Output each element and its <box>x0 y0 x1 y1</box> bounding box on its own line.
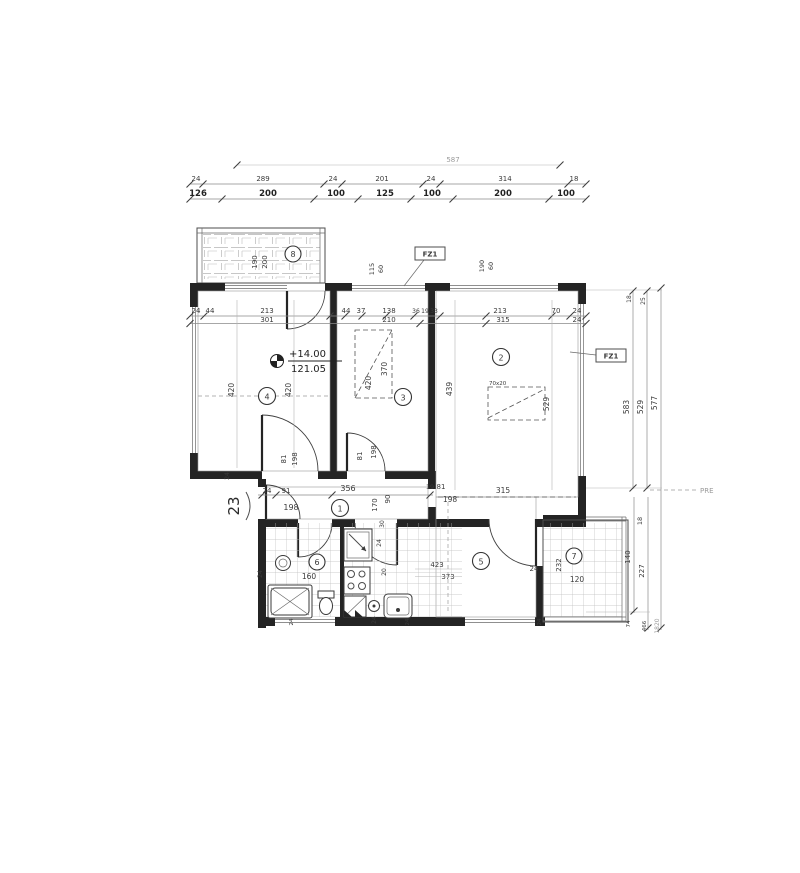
dim: 420 <box>227 383 236 398</box>
dim-total: 587 <box>446 156 459 164</box>
room-1-number: 1 <box>337 505 342 514</box>
dim: 18 <box>636 517 644 525</box>
dim: 583 <box>622 400 631 415</box>
dim: 200 <box>259 189 277 199</box>
dim: 90 <box>384 495 392 504</box>
dim: 213 <box>493 307 506 315</box>
dim: 36 <box>412 308 420 315</box>
dim: 120 <box>570 575 585 584</box>
fz1-label-top: FZ1 <box>404 247 445 286</box>
dim: 315 <box>496 316 509 324</box>
balcony-7: 7 232 120 <box>543 517 628 622</box>
dim: 115 <box>368 263 376 275</box>
kitchen: 423 373 20 24 <box>344 523 462 624</box>
room-5-number: 5 <box>478 558 483 567</box>
dim: 24 <box>224 472 231 480</box>
dim: 91 <box>282 487 291 495</box>
dim: 24 <box>371 616 378 624</box>
dim: 25 <box>640 297 647 305</box>
mid-dimension-rows: 24 44 213 44 37 138 36 19 33 213 70 24 3… <box>187 307 590 327</box>
section-mark: 23 24 <box>224 472 250 520</box>
dim: 60 <box>377 265 385 273</box>
dim: 301 <box>260 316 273 324</box>
dim: 315 <box>496 486 511 495</box>
dim: 44 <box>206 307 215 315</box>
pre-label: PRE <box>700 487 714 495</box>
dim: 44 <box>342 307 351 315</box>
dim: 289 <box>256 175 269 183</box>
dim: 210 <box>382 316 395 324</box>
dim: 356 <box>340 484 355 493</box>
dim: 314 <box>498 175 512 183</box>
bed-label: 70x20 <box>489 381 507 387</box>
elevation-bottom: 121.05 <box>291 364 326 375</box>
room-2-number: 2 <box>498 354 503 363</box>
room-4: 4 420 420 81 198 +14.00 121.05 <box>198 300 342 468</box>
dim: 20 <box>381 568 388 576</box>
elevation-top: +14.00 <box>289 349 326 360</box>
dim: 100 <box>423 189 441 199</box>
top-dimension-chains: 587 24 289 24 201 24 314 18 126 200 100 … <box>187 156 590 203</box>
dim: 125 <box>376 189 394 199</box>
dim: 200 <box>261 255 269 268</box>
section-number: 23 <box>225 496 243 515</box>
dim: 198 <box>443 495 458 504</box>
dim: 200 <box>494 189 512 199</box>
dim: 213 <box>260 307 273 315</box>
dim: 24 <box>289 618 295 625</box>
dim: 140 <box>624 550 632 563</box>
dim: 81 <box>356 452 364 461</box>
dim: 190 <box>251 255 259 268</box>
dim: 577 <box>650 396 659 411</box>
dim: 1820 <box>654 618 661 633</box>
dim: 439 <box>445 382 454 397</box>
dim: 24 <box>192 307 201 315</box>
dim: 100 <box>327 189 345 199</box>
dim: 198 <box>370 445 378 458</box>
room-3: 3 420 370 81 198 <box>355 330 412 460</box>
dim: 33 <box>430 308 438 315</box>
floor-plan-drawing: 587 24 289 24 201 24 314 18 126 200 100 … <box>0 0 800 873</box>
dim: 126 <box>189 189 207 199</box>
room-2: 2 439 529 70x20 315 <box>438 300 576 497</box>
dim: 198 <box>291 452 299 465</box>
dim: 18 <box>626 295 633 303</box>
dim: 160 <box>302 572 317 581</box>
dim: 60 <box>487 262 495 270</box>
dim: 227 <box>638 564 646 577</box>
dim: 24 <box>537 618 543 625</box>
dim: 74 <box>626 620 632 627</box>
dim: 70 <box>552 307 561 315</box>
dim: 190 <box>478 260 486 272</box>
floor-plan-page: 587 24 289 24 201 24 314 18 126 200 100 … <box>0 0 800 873</box>
room-7-number: 7 <box>571 552 576 561</box>
dim: 18 <box>570 175 579 183</box>
dim: 37 <box>357 307 366 315</box>
dim: 466 <box>642 620 648 631</box>
dim: 24 <box>329 175 338 183</box>
balcony-8: 8 190 200 <box>197 228 325 283</box>
dim: 529 <box>542 397 551 412</box>
dim: 24 <box>530 565 539 573</box>
dim: 138 <box>382 307 395 315</box>
dim: 100 <box>557 189 575 199</box>
dim: 198 <box>283 503 298 512</box>
fz1-label-right: FZ1 <box>570 349 626 362</box>
dim: 170 <box>371 498 379 511</box>
room-4-number: 4 <box>264 393 269 402</box>
dim: 81 <box>280 455 288 464</box>
dim: 201 <box>375 175 388 183</box>
room-3-number: 3 <box>400 394 405 403</box>
dim: 24 <box>263 487 272 495</box>
room-8-number: 8 <box>290 250 295 259</box>
dim: 529 <box>636 400 645 415</box>
dim: 370 <box>380 362 389 377</box>
dim: 420 <box>284 383 293 398</box>
dim: 24 <box>573 316 582 324</box>
dim: 232 <box>555 558 563 571</box>
dim: 423 <box>430 561 443 569</box>
dim: 24 <box>573 307 582 315</box>
fz1-text: FZ1 <box>423 251 438 259</box>
room-6-number: 6 <box>314 558 319 567</box>
dim: 81 <box>437 483 446 491</box>
dim: 24 <box>405 618 411 625</box>
fz1-text: FZ1 <box>604 353 619 361</box>
dim: 24 <box>427 175 436 183</box>
dim: 24 <box>257 570 264 578</box>
dim: 19 <box>426 483 434 491</box>
dim: 420 <box>364 376 373 391</box>
bathroom-6: 6 160 24 <box>257 523 340 618</box>
shaft-dims: 115 60 190 60 <box>368 260 495 275</box>
dim: 19 <box>421 308 429 315</box>
dim: 24 <box>192 175 201 183</box>
